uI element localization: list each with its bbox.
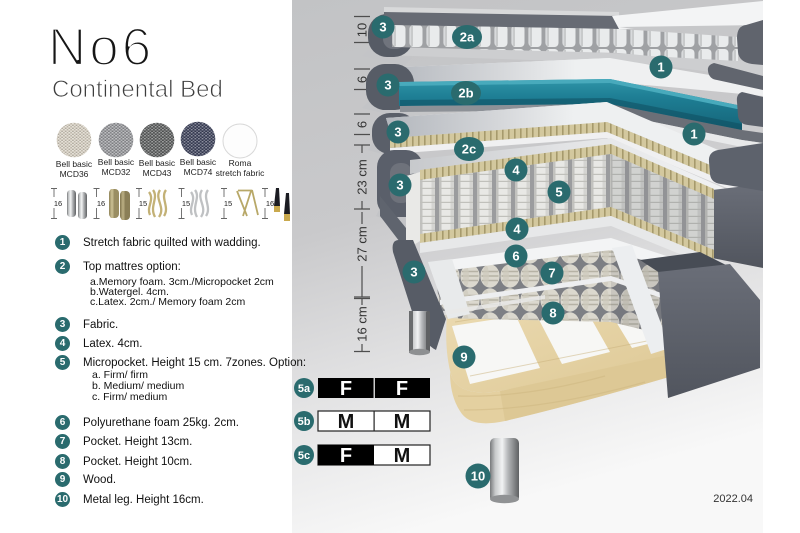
svg-text:15: 15 xyxy=(139,199,147,208)
svg-text:M: M xyxy=(394,445,411,467)
svg-text:10: 10 xyxy=(355,23,370,37)
svg-text:3: 3 xyxy=(396,178,403,193)
svg-text:9: 9 xyxy=(460,350,467,365)
svg-text:3: 3 xyxy=(384,78,391,93)
svg-text:M: M xyxy=(394,411,411,433)
svg-text:3: 3 xyxy=(394,125,401,140)
svg-text:MCD32: MCD32 xyxy=(102,167,131,177)
svg-text:MCD74: MCD74 xyxy=(184,167,213,177)
svg-text:4: 4 xyxy=(512,163,520,178)
svg-text:2b: 2b xyxy=(458,86,473,101)
svg-text:3: 3 xyxy=(410,265,417,280)
svg-text:2a: 2a xyxy=(460,30,475,45)
svg-text:7: 7 xyxy=(548,266,555,281)
svg-text:16: 16 xyxy=(266,199,274,208)
svg-text:3: 3 xyxy=(379,20,386,35)
svg-text:5b: 5b xyxy=(298,416,311,428)
svg-text:2022.04: 2022.04 xyxy=(713,493,753,505)
svg-text:15: 15 xyxy=(224,199,232,208)
svg-text:15: 15 xyxy=(182,199,190,208)
svg-text:1: 1 xyxy=(657,60,664,75)
svg-text:6: 6 xyxy=(355,121,370,128)
svg-text:M: M xyxy=(338,411,355,433)
svg-text:Bell basic: Bell basic xyxy=(180,157,217,167)
svg-text:5a: 5a xyxy=(298,383,311,395)
svg-text:F: F xyxy=(340,378,352,400)
svg-text:MCD36: MCD36 xyxy=(60,169,89,179)
svg-text:16: 16 xyxy=(97,199,105,208)
svg-text:2c: 2c xyxy=(462,142,476,157)
svg-text:4: 4 xyxy=(513,222,521,237)
svg-text:F: F xyxy=(396,378,408,400)
svg-text:10: 10 xyxy=(471,469,485,484)
svg-text:8: 8 xyxy=(549,306,556,321)
svg-text:Bell basic: Bell basic xyxy=(98,157,135,167)
svg-text:16: 16 xyxy=(54,199,62,208)
svg-text:5: 5 xyxy=(555,185,562,200)
svg-text:Bell basic: Bell basic xyxy=(56,159,93,169)
svg-text:F: F xyxy=(340,445,352,467)
svg-text:16 cm: 16 cm xyxy=(355,306,370,341)
svg-text:23 cm: 23 cm xyxy=(355,159,370,194)
svg-text:1: 1 xyxy=(690,127,697,142)
svg-text:5c: 5c xyxy=(298,450,310,462)
svg-text:MCD43: MCD43 xyxy=(143,168,172,178)
svg-text:6: 6 xyxy=(512,249,519,264)
svg-text:Roma: Roma xyxy=(229,158,252,168)
svg-text:27 cm: 27 cm xyxy=(355,226,370,261)
svg-text:stretch fabric: stretch fabric xyxy=(216,168,265,178)
svg-text:Bell basic: Bell basic xyxy=(139,158,176,168)
